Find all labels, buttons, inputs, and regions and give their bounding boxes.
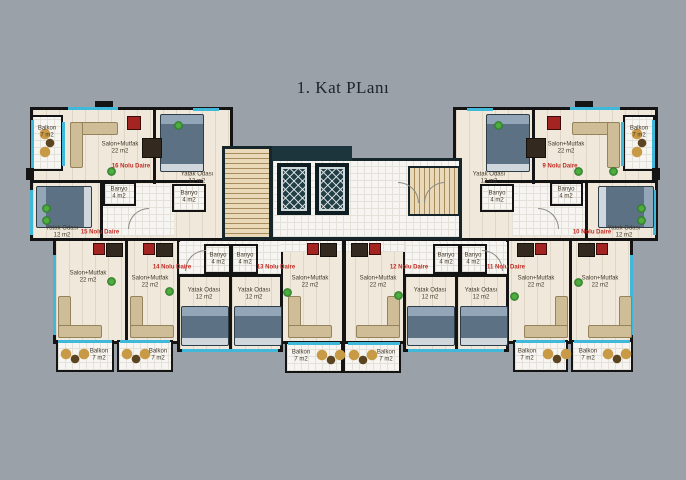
bed-furniture (181, 306, 229, 346)
room-label-bedroom-11: Yatak Odası12 m2 (465, 288, 498, 301)
room-label-salon-12: Salon+Mutfak22 m2 (360, 276, 397, 289)
stove (143, 243, 155, 255)
window-strip (348, 342, 400, 345)
wall-segment (342, 240, 346, 342)
wall-segment (455, 274, 458, 350)
plant (283, 288, 292, 297)
stove (369, 243, 381, 255)
bed-furniture (234, 306, 282, 346)
elevator-shaft-wall (272, 146, 352, 161)
sofa-furniture (288, 325, 332, 338)
window-strip (408, 349, 504, 352)
room-label-bath-10: Banyo4 m2 (557, 187, 574, 200)
plant (107, 277, 116, 286)
elevator-1 (277, 163, 311, 215)
window-strip (621, 122, 624, 166)
balcony-chairs (602, 347, 632, 365)
plant (609, 167, 618, 176)
elevator-2 (315, 163, 349, 215)
room-label-balcony-13: Balkon7 m2 (292, 350, 310, 363)
room-label-bath-14: Banyo4 m2 (209, 253, 226, 266)
stove (127, 116, 141, 130)
balcony-chairs (316, 348, 346, 366)
stove (93, 243, 105, 255)
bed-furniture (407, 306, 455, 346)
apartment-label-16: 16 Nolu Daire (112, 164, 150, 171)
wall-segment (569, 240, 572, 342)
wall-segment (125, 240, 128, 342)
apartment-label-12: 12 Nolu Daire (390, 265, 428, 272)
sofa-furniture (607, 122, 620, 168)
room-label-balcony-10: Balkon7 m2 (579, 349, 597, 362)
room-label-balcony-15: Balkon7 m2 (90, 349, 108, 362)
plant (394, 291, 403, 300)
window-strip (516, 340, 565, 343)
floor-plan-image: 1. Kat PLanı (0, 0, 686, 480)
plant (42, 204, 51, 213)
room-label-bedroom-14: Yatak Odası12 m2 (188, 288, 221, 301)
kitchen-counter (351, 243, 368, 257)
kitchen-counter (526, 138, 546, 158)
room-label-bedroom-13: Yatak Odası12 m2 (238, 288, 271, 301)
window-strip (193, 108, 219, 111)
room-label-bedroom-10: Yatak Odası12 m2 (608, 226, 641, 239)
stove (596, 243, 608, 255)
kitchen-counter (142, 138, 162, 158)
apartment-label-10: 10 Nolu Daire (573, 230, 611, 237)
room-label-balcony-9: Balkon7 m2 (630, 126, 648, 139)
window-strip (30, 190, 33, 235)
window-strip (62, 122, 65, 166)
room-label-bath-12: Banyo4 m2 (437, 253, 454, 266)
window-strip (53, 255, 56, 335)
balcony-chairs (348, 348, 378, 366)
room-label-salon-13: Salon+Mutfak22 m2 (292, 276, 329, 289)
room-label-bath-9: Banyo4 m2 (488, 191, 505, 204)
balcony-chairs (542, 347, 572, 365)
stove (547, 116, 561, 130)
room-label-balcony-16: Balkon7 m2 (38, 126, 56, 139)
plant (494, 121, 503, 130)
room-label-bath-16: Banyo4 m2 (180, 191, 197, 204)
sofa-furniture (356, 325, 400, 338)
staircase-left (222, 146, 272, 240)
kitchen-counter (517, 243, 534, 257)
room-label-bedroom-12: Yatak Odası12 m2 (414, 288, 447, 301)
wall-segment (229, 274, 232, 350)
bed-furniture (460, 306, 508, 346)
window-strip (182, 349, 278, 352)
balcony-chairs (60, 347, 90, 365)
apartment-label-11: 11 Nolu Daire (487, 265, 525, 272)
window-strip (574, 340, 630, 343)
apartment-label-9: 9 Nolu Daire (542, 164, 577, 171)
room-label-bedroom-9: Yatak Odası12 m2 (473, 172, 506, 185)
apartment-label-14: 14 Nolu Daire (153, 265, 191, 272)
sofa-furniture (70, 122, 83, 168)
room-label-salon-15: Salon+Mutfak22 m2 (70, 271, 107, 284)
kitchen-counter (320, 243, 337, 257)
sofa-furniture (524, 325, 568, 338)
room-label-bath-11: Banyo4 m2 (464, 253, 481, 266)
sofa-furniture (588, 325, 632, 338)
window-strip (68, 107, 118, 110)
apartment-label-13: 13 Nolu Daire (257, 265, 295, 272)
window-strip (120, 340, 170, 343)
room-label-bedroom-16: Yatak Odası12 m2 (181, 172, 214, 185)
kitchen-counter (578, 243, 595, 257)
room-label-balcony-12: Balkon7 m2 (377, 350, 395, 363)
page-title: 1. Kat PLanı (0, 78, 686, 98)
plant (42, 216, 51, 225)
room-label-salon-11: Salon+Mutfak22 m2 (518, 276, 555, 289)
room-label-bath-13: Banyo4 m2 (236, 253, 253, 266)
room-label-salon-10: Salon+Mutfak22 m2 (582, 276, 619, 289)
room-label-bath-15: Banyo4 m2 (110, 187, 127, 200)
window-strip (31, 120, 34, 168)
kitchen-counter (106, 243, 123, 257)
window-strip (467, 108, 493, 111)
balcony-chairs (121, 347, 151, 365)
plant (510, 292, 519, 301)
column-stub (652, 168, 660, 180)
bed-furniture (486, 114, 530, 172)
window-strip (288, 342, 340, 345)
room-label-balcony-11: Balkon7 m2 (518, 349, 536, 362)
window-strip (570, 107, 620, 110)
stove (307, 243, 319, 255)
sofa-furniture (130, 325, 174, 338)
plant (637, 216, 646, 225)
window-strip (58, 340, 112, 343)
room-label-bedroom-15: Yatak Odası12 m2 (46, 226, 79, 239)
plant (174, 121, 183, 130)
room-label-balcony-14: Balkon7 m2 (149, 349, 167, 362)
sofa-furniture (58, 325, 102, 338)
stove (535, 243, 547, 255)
room-label-salon-14: Salon+Mutfak22 m2 (132, 276, 169, 289)
room-label-salon-9: Salon+Mutfak22 m2 (548, 142, 585, 155)
apartment-label-15: 15 Nolu Daire (81, 230, 119, 237)
kitchen-counter (156, 243, 173, 257)
plant (637, 204, 646, 213)
room-label-salon-16: Salon+Mutfak22 m2 (102, 142, 139, 155)
window-strip (652, 120, 655, 168)
column-stub (26, 168, 34, 180)
